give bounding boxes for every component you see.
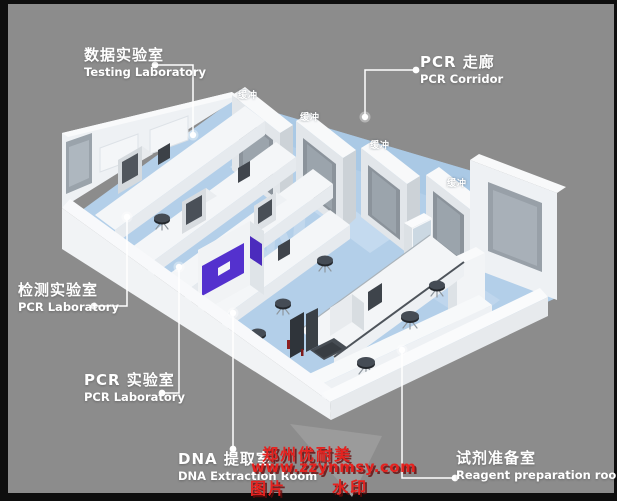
label-pcr-laboratory: PCR 实验室 PCR Laboratory [84, 372, 185, 404]
detection-laboratory-en: PCR Laboratory [18, 301, 119, 314]
testing-laboratory-en: Testing Laboratory [84, 66, 206, 79]
watermark-tag-left: 图片 [250, 475, 286, 499]
reagent-rack [306, 308, 318, 352]
stool [317, 256, 333, 273]
callout-line-pcr-corridor [360, 67, 420, 123]
reagent-preparation-zh: 试剂准备室 [456, 450, 617, 467]
label-testing-laboratory: 数据实验室 Testing Laboratory [84, 47, 206, 79]
stool [401, 311, 419, 329]
pcr-laboratory-zh: PCR 实验室 [84, 372, 185, 389]
pcr-laboratory-en: PCR Laboratory [84, 391, 185, 404]
pcr-corridor-zh: PCR 走廊 [420, 54, 503, 71]
label-pcr-corridor: PCR 走廊 PCR Corridor [420, 54, 503, 86]
label-reagent-preparation-room: 试剂准备室 Reagent preparation room [456, 450, 617, 482]
buffer-room-tag-4: 缓冲 [447, 176, 467, 189]
label-detection-laboratory: 检测实验室 PCR Laboratory [18, 282, 119, 314]
testing-laboratory-zh: 数据实验室 [84, 47, 206, 64]
reagent-preparation-en: Reagent preparation room [456, 469, 617, 482]
pcr-corridor-en: PCR Corridor [420, 73, 503, 86]
buffer-room-tag-2: 缓冲 [300, 110, 320, 123]
watermark-tag-right: 水印 [332, 474, 368, 498]
stool [275, 299, 291, 316]
buffer-room-tag-3: 缓冲 [370, 138, 390, 151]
screenshot-stage: W [0, 0, 617, 501]
detection-laboratory-zh: 检测实验室 [18, 282, 119, 299]
stool [154, 214, 170, 231]
stool [429, 281, 445, 298]
buffer-room-tag-1: 缓冲 [238, 88, 258, 101]
